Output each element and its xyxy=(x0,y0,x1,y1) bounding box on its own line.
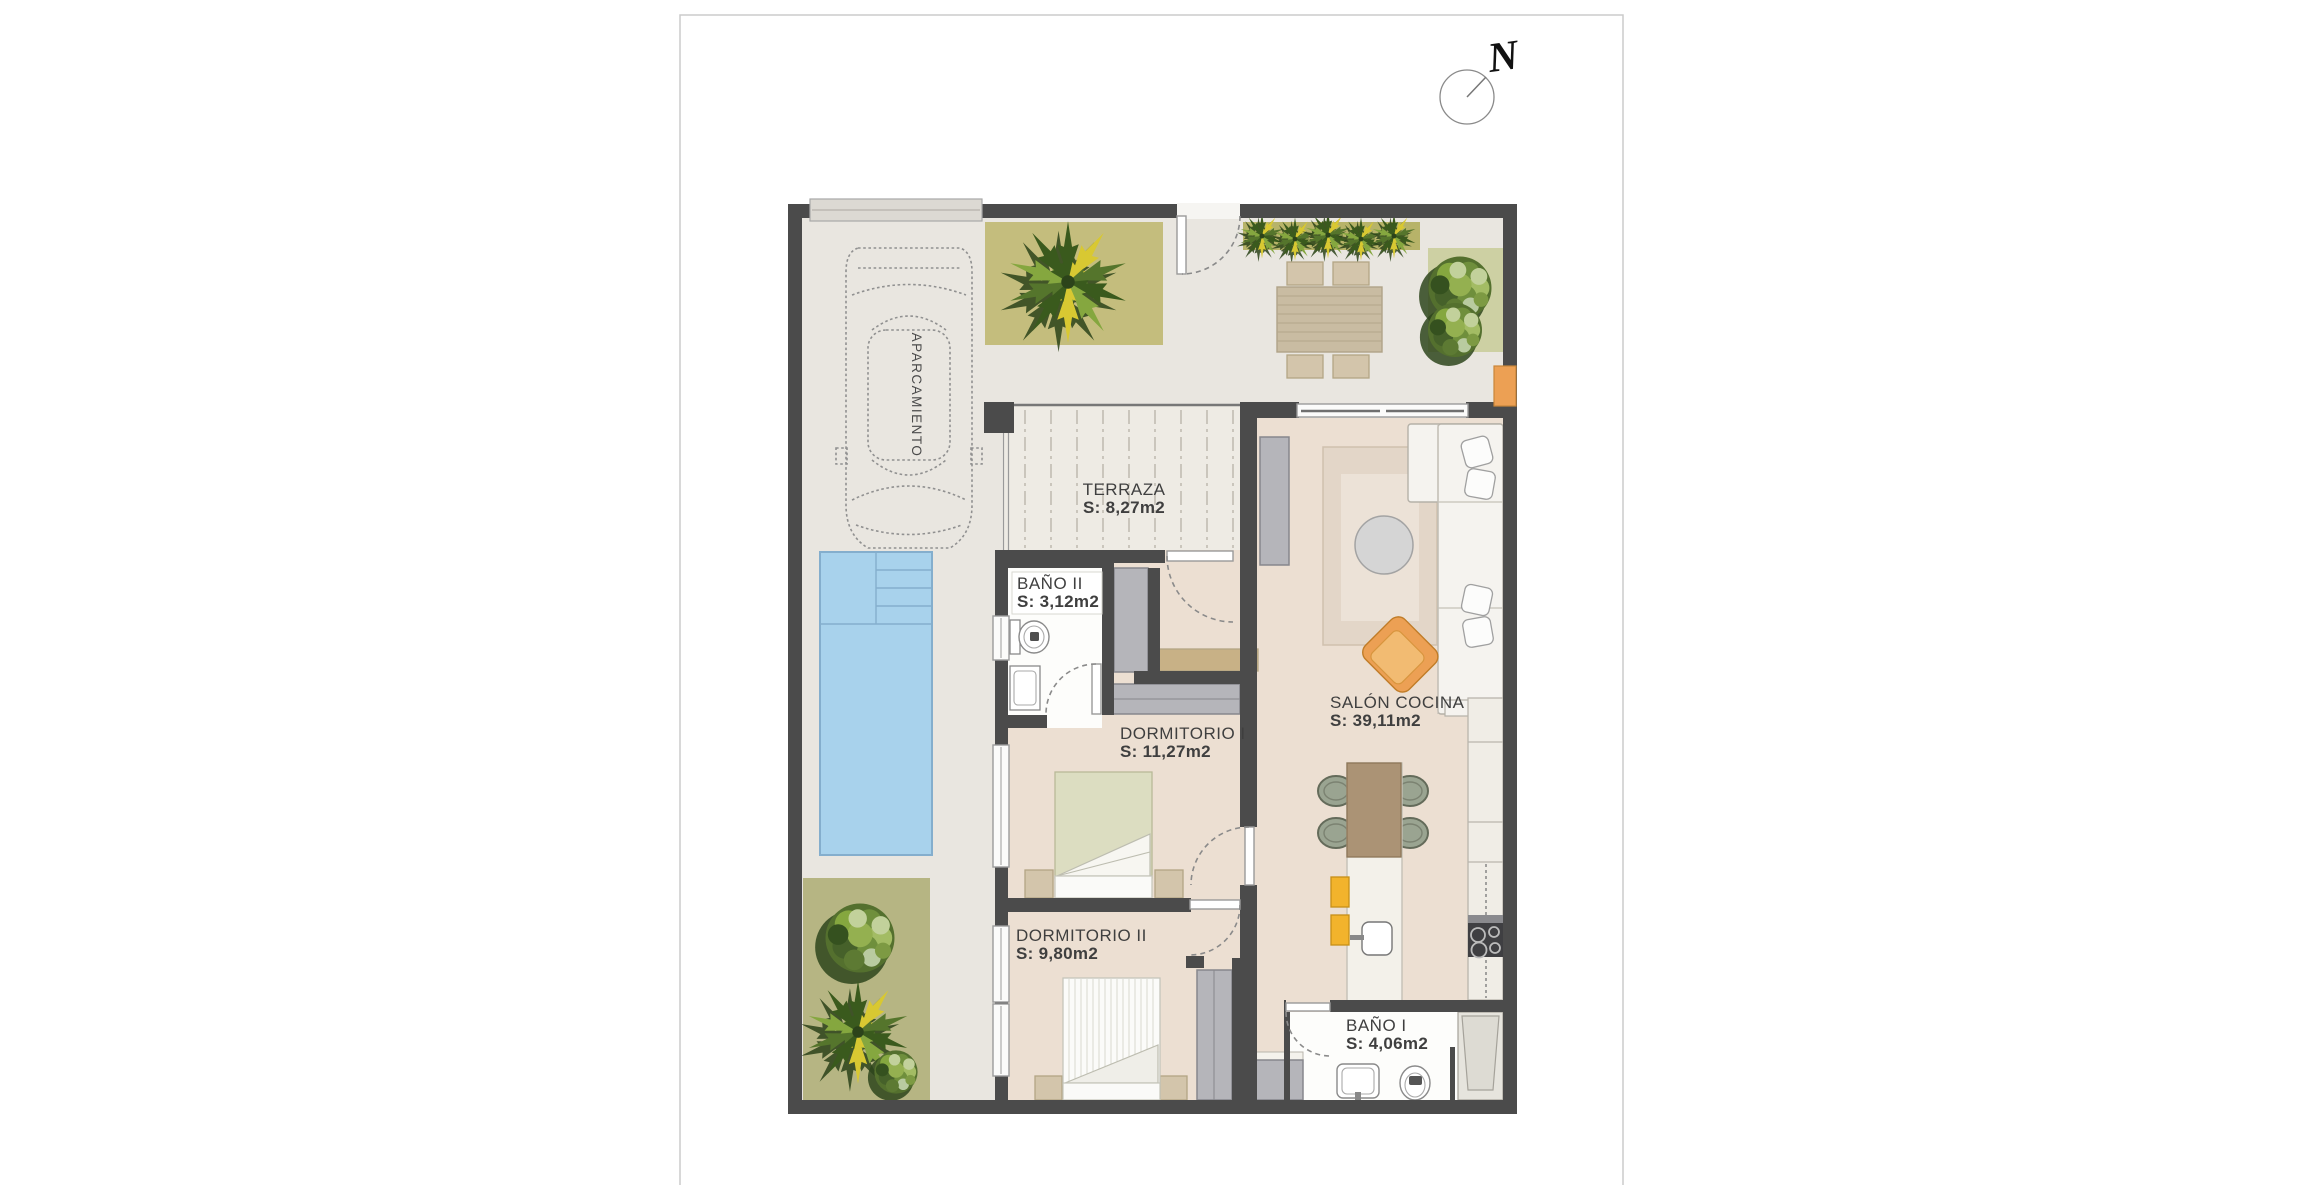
room-label-bano-ii: BAÑO II S: 3,12m2 xyxy=(1012,572,1102,614)
wardrobe-dormitorio-ii xyxy=(1197,970,1232,1100)
nightstand xyxy=(1155,870,1183,898)
garage-door xyxy=(810,199,982,221)
hob xyxy=(1468,915,1503,958)
stool xyxy=(1331,877,1349,907)
storage-closet xyxy=(1260,437,1289,565)
chair xyxy=(1333,262,1369,285)
svg-text:SALÓN COCINA: SALÓN COCINA xyxy=(1330,693,1465,712)
chair xyxy=(1333,355,1369,378)
dining-table xyxy=(1347,763,1401,857)
svg-text:S: 3,12m2: S: 3,12m2 xyxy=(1017,592,1099,611)
outdoor-table xyxy=(1277,287,1382,352)
svg-text:S: 4,06m2: S: 4,06m2 xyxy=(1346,1034,1428,1053)
svg-text:S: 11,27m2: S: 11,27m2 xyxy=(1120,742,1211,761)
svg-text:S: 39,11m2: S: 39,11m2 xyxy=(1330,711,1421,730)
wardrobe-dormitorio-i xyxy=(1110,684,1240,714)
svg-text:BAÑO I: BAÑO I xyxy=(1346,1016,1407,1035)
svg-text:DORMITORIO II: DORMITORIO II xyxy=(1016,926,1147,945)
hall-closet xyxy=(1114,568,1148,672)
nightstand xyxy=(1160,1076,1187,1100)
pool xyxy=(820,552,932,855)
faucet-icon xyxy=(1350,935,1364,940)
salon-window xyxy=(1297,404,1468,417)
svg-text:TERRAZA: TERRAZA xyxy=(1083,480,1166,499)
room-label-terraza: TERRAZA S: 8,27m2 xyxy=(1083,480,1166,517)
shower xyxy=(1458,1012,1503,1100)
bush-bed-right xyxy=(1419,248,1503,366)
kitchen-sink xyxy=(1362,922,1392,955)
svg-text:S: 9,80m2: S: 9,80m2 xyxy=(1016,944,1098,963)
planter-bed-top xyxy=(985,221,1163,352)
svg-text:S: 8,27m2: S: 8,27m2 xyxy=(1083,498,1165,517)
floor-plan-drawing: N xyxy=(0,0,2304,1185)
nightstand xyxy=(1025,870,1053,898)
chair xyxy=(1287,355,1323,378)
faucet-icon xyxy=(1355,1092,1361,1100)
floor-plan-page: N xyxy=(0,0,2304,1185)
room-label-aparcamiento: APARCAMIENTO xyxy=(909,333,924,458)
nightstand xyxy=(1035,1076,1062,1100)
garden-bed-bottom xyxy=(798,878,930,1101)
svg-text:DORMITORIO I: DORMITORIO I xyxy=(1120,724,1246,743)
stool xyxy=(1331,915,1349,945)
coffee-table xyxy=(1355,516,1413,574)
terraza-room xyxy=(1002,405,1243,550)
svg-text:BAÑO II: BAÑO II xyxy=(1017,574,1083,593)
chair xyxy=(1287,262,1323,285)
kitchen-counter xyxy=(1468,698,1503,1000)
wall-planter xyxy=(1494,366,1516,406)
